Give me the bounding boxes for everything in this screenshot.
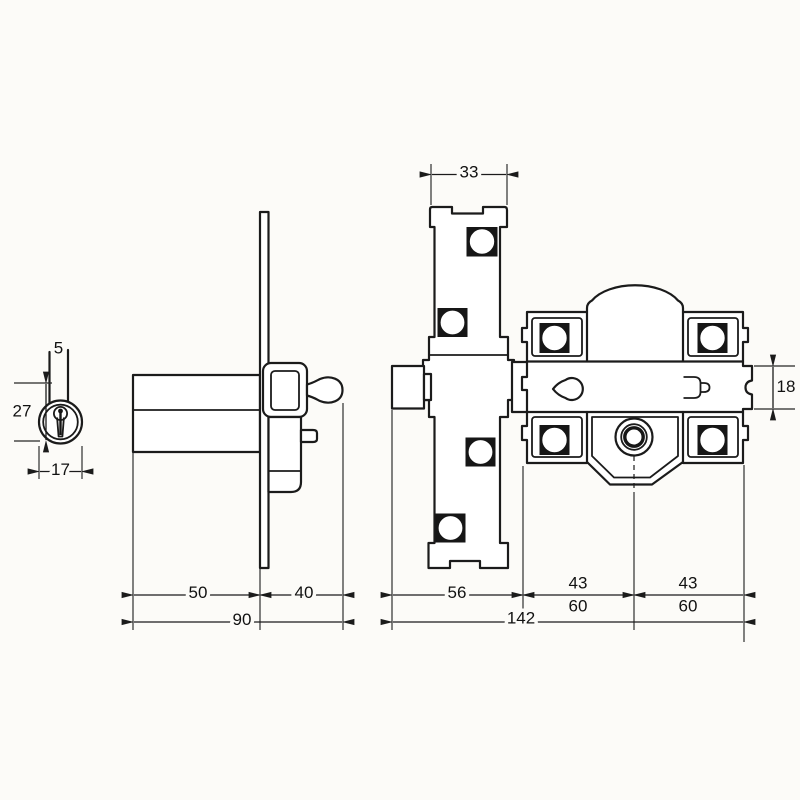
dim-label: 18 <box>777 377 796 396</box>
side-lower-bracket <box>269 417 302 492</box>
dim-hole-span-right: 43 60 <box>635 465 744 642</box>
screw-hole <box>540 426 569 455</box>
dim-label: 40 <box>295 583 314 602</box>
dim-label: 56 <box>448 583 467 602</box>
dim-label: 60 <box>569 596 588 615</box>
screw-hole <box>698 324 727 353</box>
bolt-left-end <box>392 366 424 409</box>
dim-stem-width: 5 <box>54 338 63 357</box>
screw-hole <box>438 309 467 337</box>
lock-technical-drawing: 5 27 17 <box>0 0 800 800</box>
dim-label: 142 <box>507 608 535 627</box>
cylinder-face <box>616 419 653 456</box>
cylinder-front-view: 5 27 17 <box>13 338 82 479</box>
dim-label: 60 <box>679 596 698 615</box>
dim-label: 43 <box>679 573 698 592</box>
side-pin <box>301 430 317 442</box>
side-bolt-housing <box>133 375 260 452</box>
dim-bolt-height: 18 <box>754 366 795 409</box>
lock-front-view: 33 18 56 43 60 43 60 142 <box>392 162 795 642</box>
scanned-technical-drawing-page: 5 27 17 <box>0 0 800 800</box>
dim-label: 5 <box>54 338 63 357</box>
dim-cylinder-diameter: 17 <box>39 446 82 479</box>
dim-label: 50 <box>189 583 208 602</box>
side-toggle-knob <box>307 377 343 402</box>
dim-label: 17 <box>51 460 70 479</box>
screw-hole <box>467 228 497 257</box>
dim-cylinder-height: 27 <box>13 383 52 441</box>
screw-hole <box>698 426 727 455</box>
screw-hole <box>540 324 569 353</box>
dim-hole-span-left: 43 60 <box>524 573 633 615</box>
dim-total-depth: 90 <box>134 610 342 629</box>
dim-case-depth: 50 <box>133 453 260 630</box>
screw-hole <box>436 514 465 542</box>
screw-hole <box>466 438 495 466</box>
dim-label: 43 <box>569 573 588 592</box>
dim-label: 33 <box>460 162 479 181</box>
dim-label: 90 <box>233 610 252 629</box>
lock-side-view: 50 40 90 <box>133 212 343 630</box>
dim-strike-width: 33 <box>431 162 507 205</box>
dim-label: 27 <box>13 401 32 420</box>
